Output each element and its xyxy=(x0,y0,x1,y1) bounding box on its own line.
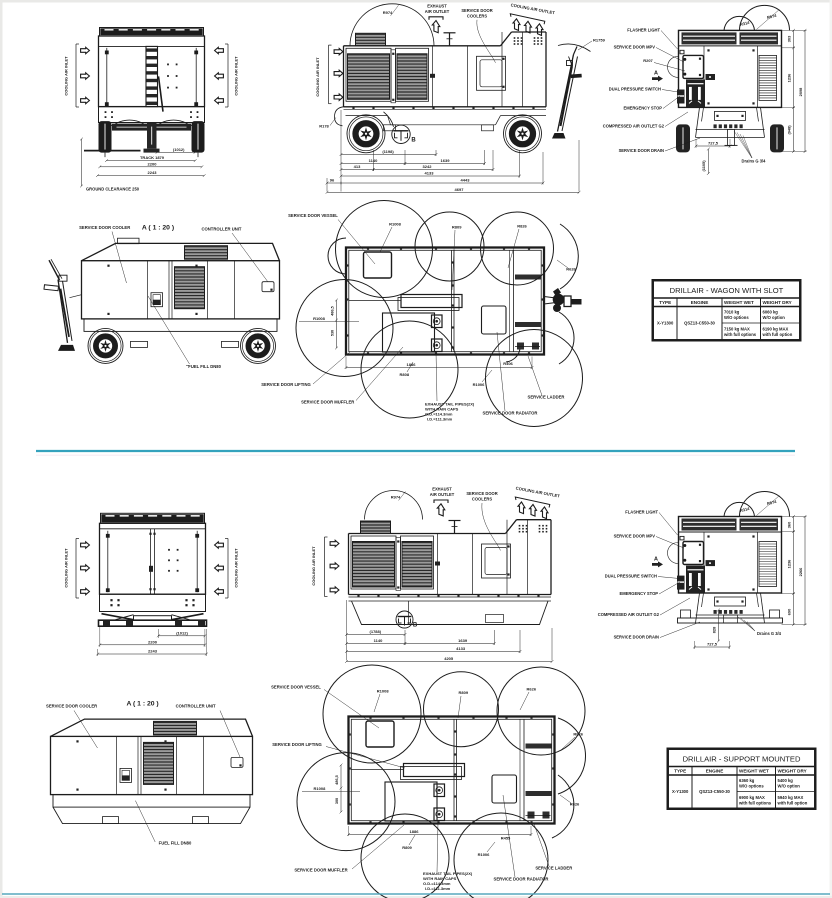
svg-text:828: 828 xyxy=(712,626,717,633)
svg-text:7150 kg MAX: 7150 kg MAX xyxy=(724,327,750,332)
svg-text:R178: R178 xyxy=(319,124,329,129)
svg-text:R1008: R1008 xyxy=(314,786,327,791)
svg-text:WEIGHT WET: WEIGHT WET xyxy=(724,300,754,305)
svg-text:1236: 1236 xyxy=(787,73,792,82)
svg-text:R1008: R1008 xyxy=(377,689,390,694)
svg-text:1236: 1236 xyxy=(787,559,792,568)
svg-text:(1012): (1012) xyxy=(173,147,185,152)
svg-text:96: 96 xyxy=(330,178,335,183)
svg-text:I.D.=111.3mm: I.D.=111.3mm xyxy=(425,886,451,891)
svg-text:COOLING AIR INLET: COOLING AIR INLET xyxy=(64,548,69,588)
svg-text:W/O option: W/O option xyxy=(778,784,801,789)
svg-text:COOLING AIR INLET: COOLING AIR INLET xyxy=(234,56,239,96)
svg-text:SERVICE DOOR LIFTING: SERVICE DOOR LIFTING xyxy=(261,382,310,387)
svg-text:R809: R809 xyxy=(402,845,412,850)
svg-text:SERVICE DOOR: SERVICE DOOR xyxy=(466,491,497,496)
svg-text:4697: 4697 xyxy=(455,187,465,192)
svg-text:QSZ13-C550-30: QSZ13-C550-30 xyxy=(684,321,715,326)
svg-text:R207: R207 xyxy=(643,58,653,63)
svg-text:SERVICE DOOR DRAIN: SERVICE DOOR DRAIN xyxy=(619,148,664,153)
svg-text:300: 300 xyxy=(335,798,339,804)
svg-text:4133: 4133 xyxy=(425,171,435,176)
svg-text:B: B xyxy=(413,623,418,629)
svg-text:727,5: 727,5 xyxy=(707,642,718,647)
svg-text:413: 413 xyxy=(354,164,361,169)
svg-text:SERVICE LADDER: SERVICE LADDER xyxy=(535,866,572,871)
svg-text:4133: 4133 xyxy=(456,646,466,651)
svg-text:1639: 1639 xyxy=(458,638,468,643)
svg-text:2243: 2243 xyxy=(148,170,158,175)
svg-text:FLASHER LIGHT: FLASHER LIGHT xyxy=(625,510,658,515)
svg-text:COOLING AIR INLET: COOLING AIR INLET xyxy=(64,56,69,96)
svg-text:DUAL PRESSURE SWITCH: DUAL PRESSURE SWITCH xyxy=(605,574,657,579)
svg-text:SERVICE DOOR MUFFLER: SERVICE DOOR MUFFLER xyxy=(294,868,347,873)
svg-text:COMPRESSED AIR OUTLET G2: COMPRESSED AIR OUTLET G2 xyxy=(603,124,665,129)
svg-text:EXHAUST: EXHAUST xyxy=(432,487,452,492)
svg-text:SERVICE DOOR RADIATOR: SERVICE DOOR RADIATOR xyxy=(494,877,549,882)
svg-text:SERVICE DOOR: SERVICE DOOR xyxy=(461,8,492,13)
svg-text:I.D.=111.3mm: I.D.=111.3mm xyxy=(427,417,453,422)
svg-text:2200: 2200 xyxy=(148,639,158,644)
svg-text:COOLING AIR INLET: COOLING AIR INLET xyxy=(315,57,320,97)
svg-text:486,5: 486,5 xyxy=(335,775,339,785)
svg-text:COOLERS: COOLERS xyxy=(472,497,493,502)
svg-text:R808: R808 xyxy=(400,372,410,377)
svg-text:X-Y1300: X-Y1300 xyxy=(672,789,689,794)
svg-text:A ( 1 : 20 ): A ( 1 : 20 ) xyxy=(142,225,174,232)
svg-text:360: 360 xyxy=(787,522,792,529)
svg-text:303: 303 xyxy=(787,35,792,42)
svg-text:6060 kg: 6060 kg xyxy=(763,310,779,315)
svg-text:COOLERS: COOLERS xyxy=(467,13,488,18)
svg-text:COMPRESSED AIR OUTLET G2: COMPRESSED AIR OUTLET G2 xyxy=(598,612,660,617)
svg-text:4443: 4443 xyxy=(461,178,471,183)
svg-text:(1198): (1198) xyxy=(382,149,394,154)
svg-text:R1006: R1006 xyxy=(473,382,486,387)
svg-text:SERVICE DOOR MPV: SERVICE DOOR MPV xyxy=(614,534,656,539)
svg-text:A: A xyxy=(654,557,658,563)
svg-text:R1008: R1008 xyxy=(389,222,402,227)
svg-text:X-Y1300: X-Y1300 xyxy=(657,321,674,326)
svg-text:TRACK 1879: TRACK 1879 xyxy=(140,155,165,160)
svg-text:FUEL FILL DN80: FUEL FILL DN80 xyxy=(188,364,221,369)
svg-text:1140: 1140 xyxy=(374,638,383,643)
svg-text:SERVICE LADDER: SERVICE LADDER xyxy=(528,395,565,400)
svg-text:with full options: with full options xyxy=(723,332,757,337)
svg-text:R1006: R1006 xyxy=(478,852,491,857)
svg-text:SERVICE DOOR MPV: SERVICE DOOR MPV xyxy=(614,45,656,50)
svg-text:WEIGHT WET: WEIGHT WET xyxy=(739,769,769,774)
svg-text:W/O options: W/O options xyxy=(739,784,764,789)
svg-text:3242: 3242 xyxy=(423,164,433,169)
svg-text:1639: 1639 xyxy=(441,158,451,163)
svg-text:COOLING AIR INLET: COOLING AIR INLET xyxy=(311,546,316,586)
svg-text:SERVICE DOOR COOLER: SERVICE DOOR COOLER xyxy=(79,225,130,230)
svg-text:(948): (948) xyxy=(787,125,792,135)
svg-text:2266: 2266 xyxy=(798,567,803,576)
svg-text:R826: R826 xyxy=(573,732,583,737)
svg-text:TYPE: TYPE xyxy=(674,769,686,774)
svg-text:4205: 4205 xyxy=(444,656,454,661)
svg-text:690: 690 xyxy=(787,609,792,616)
svg-text:SERVICE DOOR COOLER: SERVICE DOOR COOLER xyxy=(46,704,97,709)
svg-text:A: A xyxy=(654,71,658,77)
svg-text:R626: R626 xyxy=(527,687,537,692)
svg-text:6360 kg: 6360 kg xyxy=(739,778,755,783)
svg-text:R974: R974 xyxy=(391,495,401,500)
svg-text:2200: 2200 xyxy=(148,161,158,166)
svg-text:with full option: with full option xyxy=(762,332,793,337)
svg-text:6900 kg MAX: 6900 kg MAX xyxy=(739,795,765,800)
svg-text:6190 kg MAX: 6190 kg MAX xyxy=(763,327,789,332)
svg-text:R1008: R1008 xyxy=(313,316,326,321)
svg-text:R1759: R1759 xyxy=(593,38,606,43)
svg-text:486,5: 486,5 xyxy=(331,306,335,316)
svg-text:(1012): (1012) xyxy=(176,630,188,635)
svg-text:ENGINE: ENGINE xyxy=(691,300,709,305)
svg-text:1886: 1886 xyxy=(410,829,420,834)
svg-text:DRILLAIR - WAGON WITH SLOT: DRILLAIR - WAGON WITH SLOT xyxy=(670,286,784,295)
svg-text:530: 530 xyxy=(331,330,335,336)
svg-text:CONTROLLER UNIT: CONTROLLER UNIT xyxy=(176,704,216,709)
svg-text:WEIGHT DRY: WEIGHT DRY xyxy=(763,300,792,305)
svg-text:(1105): (1105) xyxy=(701,160,706,172)
svg-text:Drains G 3/4: Drains G 3/4 xyxy=(742,159,767,164)
svg-text:TYPE: TYPE xyxy=(659,300,671,305)
svg-text:Drains G 3/4: Drains G 3/4 xyxy=(757,631,782,636)
svg-text:R809: R809 xyxy=(459,690,469,695)
svg-text:CONTROLLER UNIT: CONTROLLER UNIT xyxy=(201,227,241,232)
svg-text:QSZ13-C550-30: QSZ13-C550-30 xyxy=(699,789,730,794)
svg-text:AIR OUTLET: AIR OUTLET xyxy=(430,492,455,497)
svg-text:W/O option: W/O option xyxy=(763,315,786,320)
svg-text:SERVICE DOOR VESSEL: SERVICE DOOR VESSEL xyxy=(288,213,338,218)
svg-text:B: B xyxy=(411,137,416,143)
svg-text:2098: 2098 xyxy=(798,87,803,96)
svg-text:7010 kg: 7010 kg xyxy=(724,310,740,315)
svg-text:SERVICE DOOR LIFTING: SERVICE DOOR LIFTING xyxy=(272,742,321,747)
svg-text:AIR OUTLET: AIR OUTLET xyxy=(425,9,450,14)
svg-text:SERVICE DOOR VESSEL: SERVICE DOOR VESSEL xyxy=(271,685,321,690)
svg-text:EMERGENCY STOP: EMERGENCY STOP xyxy=(619,591,658,596)
svg-text:FUEL FILL DN80: FUEL FILL DN80 xyxy=(159,841,192,846)
svg-text:COOLING AIR INLET: COOLING AIR INLET xyxy=(234,548,239,588)
svg-text:SERVICE DOOR DRAIN: SERVICE DOOR DRAIN xyxy=(614,635,659,640)
svg-text:W/O options: W/O options xyxy=(724,315,749,320)
svg-text:5400 kg: 5400 kg xyxy=(778,778,794,783)
svg-text:R626: R626 xyxy=(566,267,576,272)
svg-text:SERVICE DOOR RADIATOR: SERVICE DOOR RADIATOR xyxy=(483,411,538,416)
svg-text:ENGINE: ENGINE xyxy=(706,769,724,774)
svg-text:SERVICE DOOR MUFFLER: SERVICE DOOR MUFFLER xyxy=(301,400,354,405)
svg-text:727,5: 727,5 xyxy=(708,141,719,146)
svg-text:EXHAUST: EXHAUST xyxy=(427,3,447,8)
svg-text:FLASHER LIGHT: FLASHER LIGHT xyxy=(627,28,660,33)
svg-text:R974: R974 xyxy=(383,10,393,15)
svg-text:DUAL PRESSURE SWITCH: DUAL PRESSURE SWITCH xyxy=(609,87,661,92)
svg-text:R626: R626 xyxy=(570,802,580,807)
svg-text:with full option: with full option xyxy=(777,801,808,806)
svg-text:1140: 1140 xyxy=(369,158,378,163)
svg-text:EMERGENCY STOP: EMERGENCY STOP xyxy=(623,106,662,111)
svg-text:R406: R406 xyxy=(503,361,513,366)
svg-text:R809: R809 xyxy=(452,225,462,230)
svg-text:(1788): (1788) xyxy=(370,629,382,634)
svg-text:R826: R826 xyxy=(517,224,527,229)
svg-text:with full options: with full options xyxy=(738,801,772,806)
svg-text:DRILLAIR - SUPPORT MOUNTED: DRILLAIR - SUPPORT MOUNTED xyxy=(683,755,801,764)
svg-text:5940 kg MAX: 5940 kg MAX xyxy=(778,795,804,800)
svg-text:GROUND CLEARANCE 250: GROUND CLEARANCE 250 xyxy=(86,187,140,192)
svg-text:WEIGHT DRY: WEIGHT DRY xyxy=(778,769,807,774)
svg-text:A ( 1 : 20 ): A ( 1 : 20 ) xyxy=(126,701,158,708)
svg-text:2243: 2243 xyxy=(148,649,158,654)
